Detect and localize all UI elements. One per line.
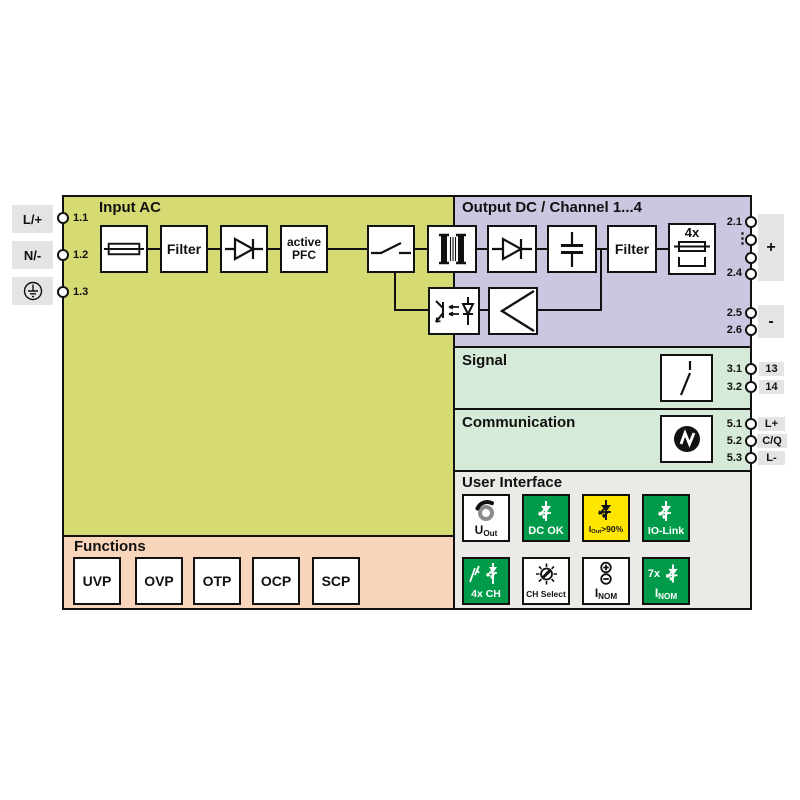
function-otp: OTP [193,557,241,605]
function-ocp: OCP [252,557,300,605]
tile-ch-select-label: CH Select [526,589,566,603]
tile-inom-adjust-label: INOM [595,588,617,603]
feedback-wire [538,309,602,311]
active-pfc-line2: PFC [287,249,321,262]
pin-label-1-1: 1.1 [73,212,88,224]
capacitor-block [547,225,597,273]
user-interface-title: User Interface [462,474,562,491]
feedback-wire [600,250,602,311]
terminal-5-3 [745,452,757,464]
terminal-2-1 [745,216,757,228]
pin-label-1-2: 1.2 [73,249,88,261]
connector-plus: + [758,214,784,281]
tile-io-link: IO-Link [642,494,690,542]
pin-label-2-6: 2.6 [714,324,742,336]
diode-icon [489,227,535,271]
function-ovp: OVP [135,557,183,605]
pin-label-5-3: 5.3 [714,452,742,464]
pin-label-2-5: 2.5 [714,307,742,319]
terminal-2-3 [745,252,757,264]
fuse-4x-icon [670,240,714,270]
optocoupler-block [428,287,480,335]
wire [208,248,220,250]
wire [328,248,367,250]
terminal-5-2 [745,435,757,447]
tile-4x-ch: 4x CH [462,557,510,605]
tile-4x-ch-label: 4x CH [471,589,501,603]
input-filter-block: Filter [160,225,208,273]
terminal-1-1 [57,212,69,224]
input-ac-title: Input AC [99,199,161,216]
led-icon [662,562,684,585]
terminal-1-2 [57,249,69,261]
comparator-icon [490,289,536,333]
wire [268,248,280,250]
connector-n-minus: N/- [12,241,53,269]
tile-inom-adjust: INOM [582,557,630,605]
wire [148,248,160,250]
connector-cq: C/Q [757,434,787,448]
fuse-block [100,225,148,273]
wire [537,248,547,250]
connector-minus: - [758,305,784,338]
connector-l-plus: L/+ [12,205,53,233]
relay-contact-icon [662,356,711,400]
connector-lplus: L+ [758,417,785,431]
pin-label-5-2: 5.2 [714,435,742,447]
switching-stage-block [367,225,415,273]
tile-uout-label: UOut [475,525,498,540]
function-scp: SCP [312,557,360,605]
function-uvp: UVP [73,557,121,605]
communication-title: Communication [462,414,575,431]
optocoupler-icon [430,289,478,333]
plus-minus-icon [594,561,618,586]
terminal-2-2 [745,234,757,246]
tile-ch-select: CH Select [522,557,570,605]
wire [415,248,427,250]
io-link-logo-icon [671,423,703,455]
switch-icon [369,227,413,271]
ground-icon [23,281,43,301]
rotary-selector-icon [533,561,560,587]
signal-relay-block [660,354,713,402]
transformer-block [427,225,477,273]
active-pfc-block: active PFC [280,225,328,273]
terminal-3-2 [745,381,757,393]
connector-lminus: L- [758,451,785,465]
terminal-5-1 [745,418,757,430]
terminal-2-6 [745,324,757,336]
led-icon [534,499,558,523]
output-diode-block [487,225,537,273]
output-filter-block: Filter [607,225,657,273]
pin-label-5-1: 5.1 [714,418,742,430]
capacitor-icon [549,227,595,271]
connector-pe [12,277,53,305]
tile-dc-ok-label: DC OK [528,526,563,540]
tile-io-link-label: IO-Link [648,526,684,540]
tile-iout90-label: IOut>90% [589,524,623,540]
feedback-wire [394,309,428,311]
tile-7x-prefix: 7x [648,568,660,580]
rectifier-diode-icon [222,227,266,271]
tile-uout: UOut [462,494,510,542]
tile-7x-inom: 7x INOM [642,557,690,605]
wire [657,248,668,250]
potentiometer-icon [473,498,500,523]
power-supply-block-diagram: Input AC Output DC / Channel 1...4 Signa… [0,0,800,800]
pin-label-1-3: 1.3 [73,286,88,298]
terminal-3-1 [745,363,757,375]
channel-switch-led-icon [467,562,505,586]
pin-label-2-4: 2.4 [714,267,742,279]
connector-14: 14 [759,380,784,394]
comparator-block [488,287,538,335]
output-dc-title: Output DC / Channel 1...4 [462,199,642,216]
terminal-2-5 [745,307,757,319]
fuse-icon [102,227,146,271]
pin-label-3-2: 3.2 [714,381,742,393]
pin-label-2-1: 2.1 [714,216,742,228]
tile-7x-inom-label: INOM [655,588,677,603]
feedback-wire [394,273,396,311]
tile-iout90: IOut>90% [582,494,630,542]
transformer-icon [429,227,475,271]
tile-dc-ok: DC OK [522,494,570,542]
led-icon [594,498,618,522]
io-link-block [660,415,713,463]
terminal-1-3 [57,286,69,298]
led-icon [654,499,678,523]
signal-title: Signal [462,352,507,369]
rectifier-block [220,225,268,273]
fuse-multi-label: 4x [685,226,699,240]
functions-title: Functions [74,538,146,555]
feedback-wire [480,309,488,311]
wire [597,248,607,250]
pin-label-3-1: 3.1 [714,363,742,375]
wire [477,248,487,250]
output-fuses-block: 4x [668,223,716,275]
terminal-2-4 [745,268,757,280]
connector-13: 13 [759,362,784,376]
